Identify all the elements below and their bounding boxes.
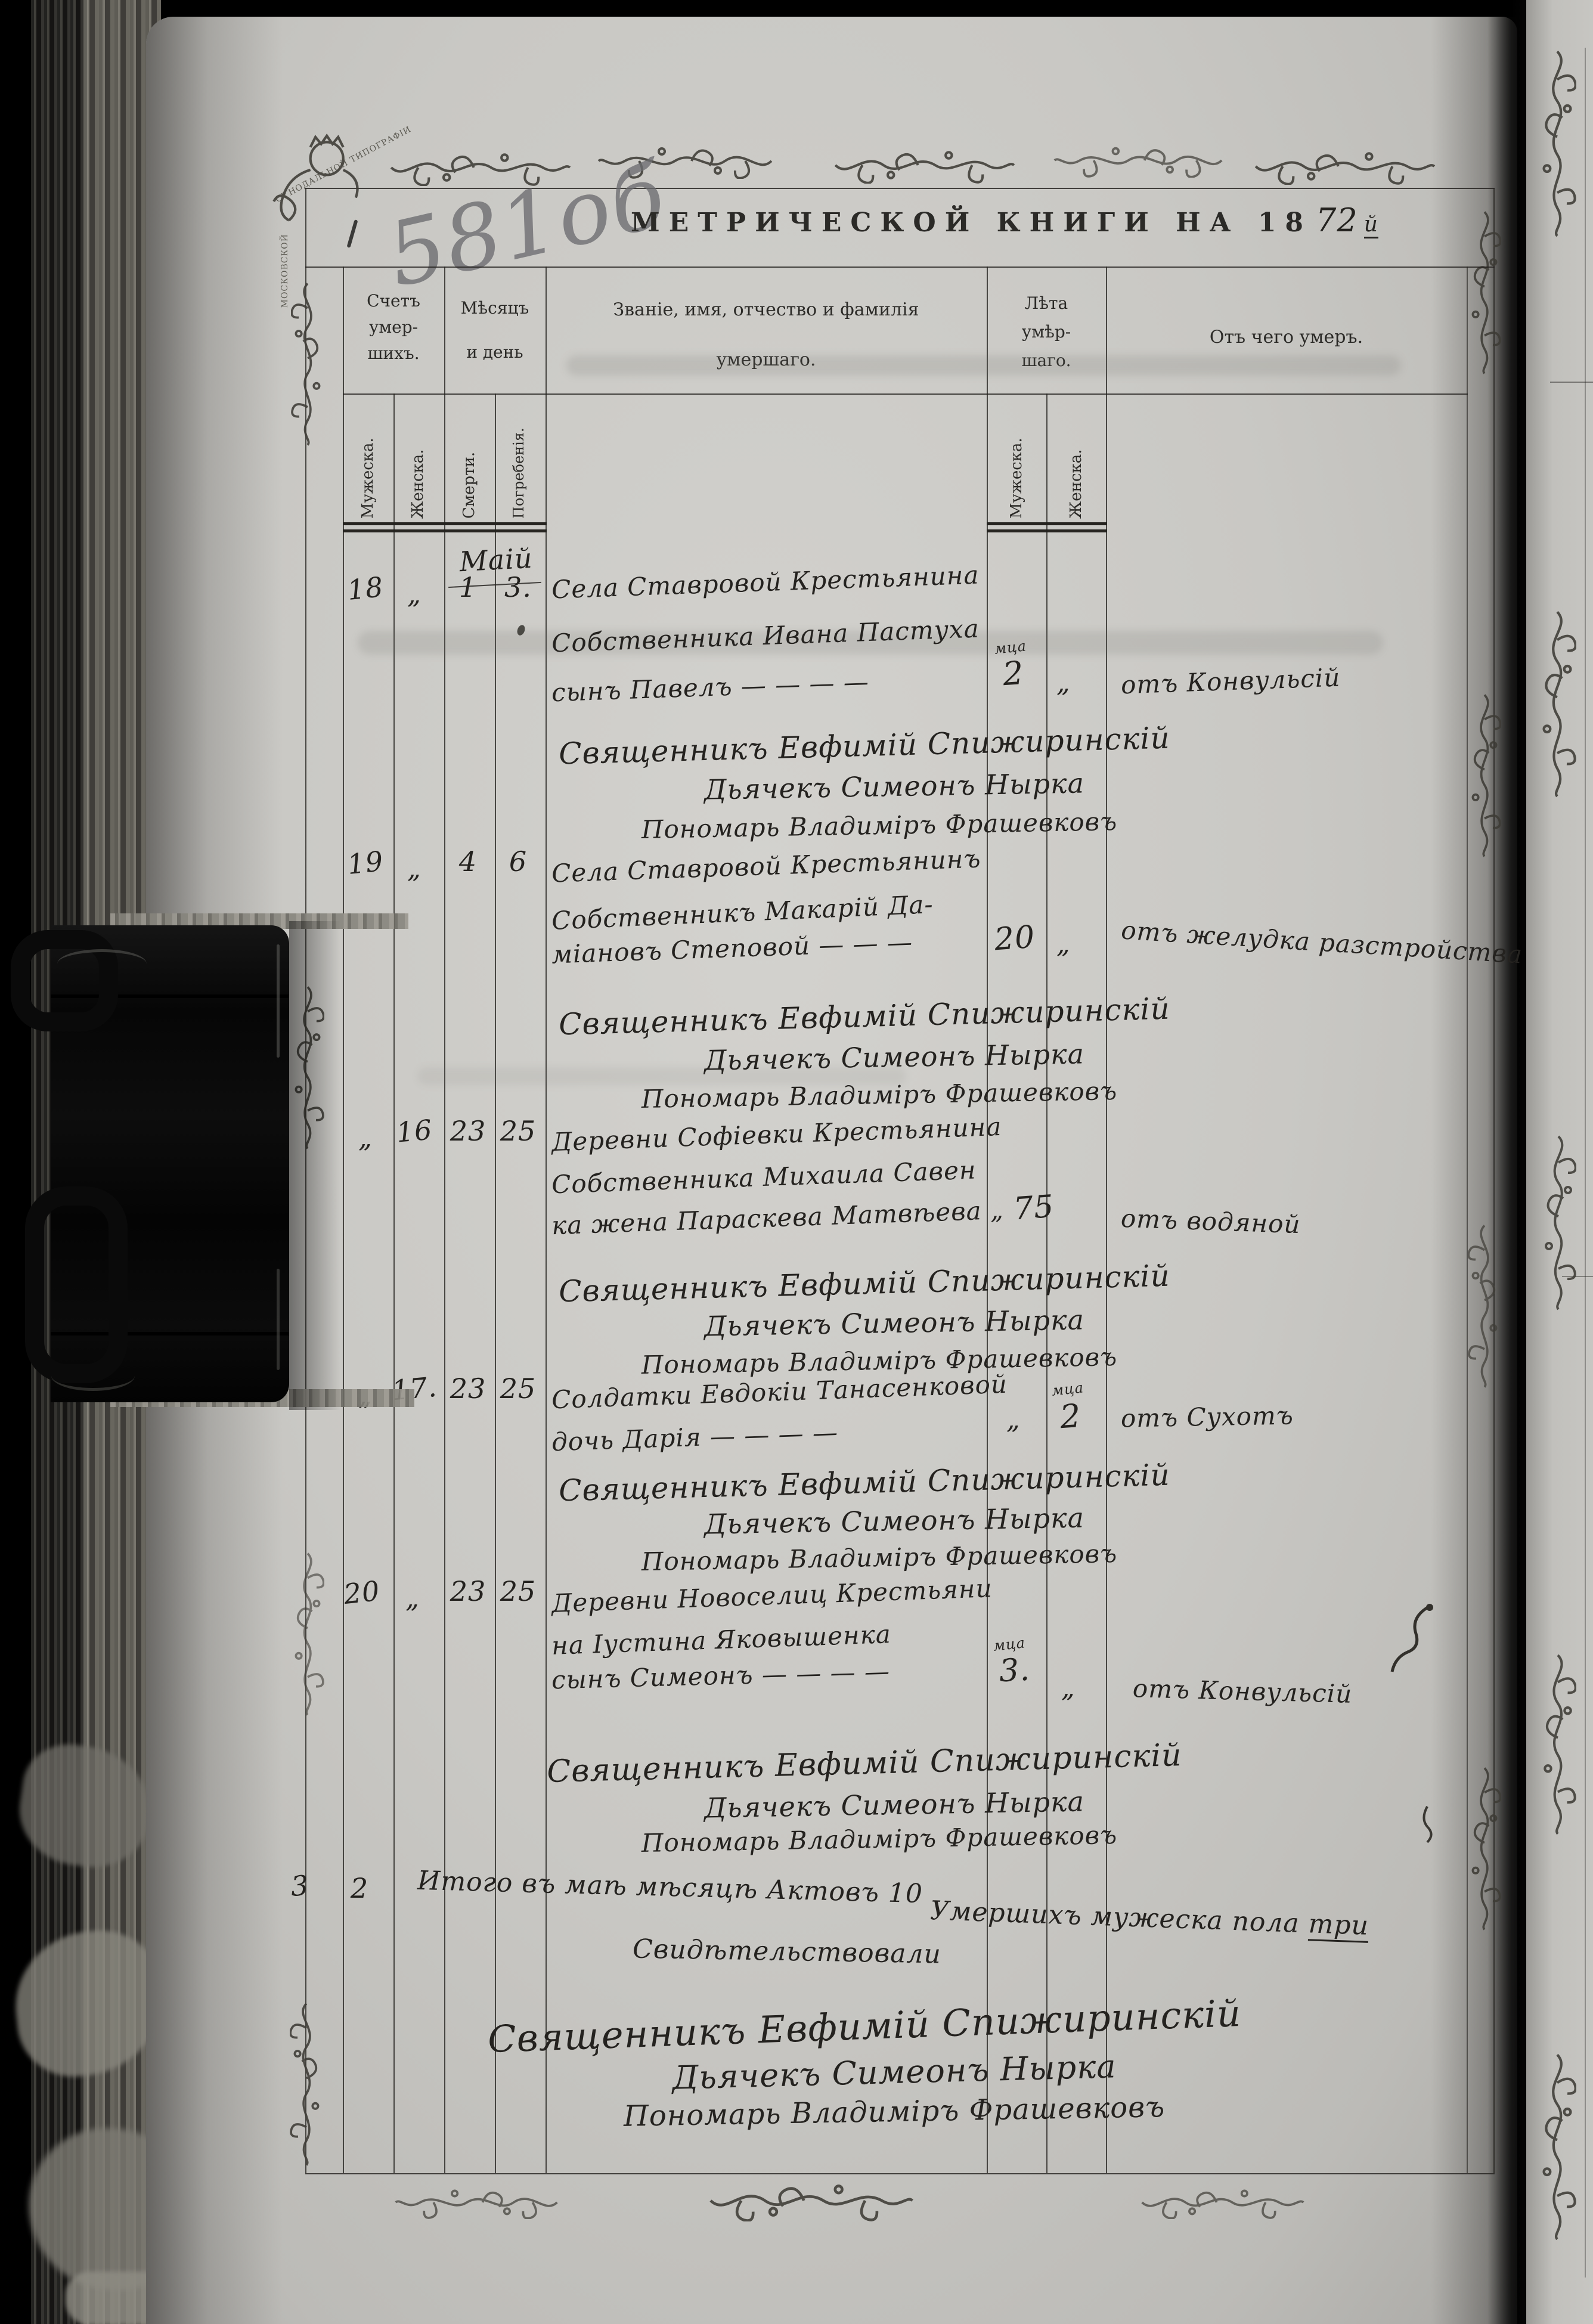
age-unit: мца [1051, 1379, 1085, 1399]
age-male: 2 [1002, 654, 1025, 693]
cause-of-death: отъ Сухотъ [1121, 1400, 1294, 1433]
count-male-ditto: „ [339, 1123, 392, 1154]
count-female-ditto: „ [390, 854, 438, 884]
burial-day: 25 [491, 1372, 545, 1405]
age-male-ditto: „ [1006, 1405, 1021, 1435]
subheader-count-female: Женска. [409, 398, 427, 519]
death-day: 23 [442, 1372, 494, 1405]
column-header-month: и день [444, 342, 546, 362]
column-header-month: Мѣсяцъ [444, 298, 546, 318]
count-male: 18 [337, 569, 393, 607]
age-male: 3. [998, 1652, 1031, 1690]
ruled-line-horizontal [343, 393, 1468, 395]
binder-clip-highlight [51, 1361, 135, 1391]
subheader-death-day: Смерти. [460, 398, 478, 519]
floral-ornament [1468, 179, 1501, 405]
floral-ornament [1049, 143, 1228, 178]
floral-ornament [1538, 2045, 1576, 2248]
binder-clip-shadow [289, 921, 340, 1410]
ruled-line-horizontal [1550, 382, 1593, 383]
summary-male-total: 3 [272, 1868, 328, 1904]
age-female-ditto: „ [1056, 929, 1071, 959]
count-male: 20 [333, 1573, 390, 1611]
cause-of-death: отъ Конвульсій [1132, 1674, 1353, 1709]
column-header-count: Счетъ [343, 291, 444, 311]
title-year-suffix: й [1364, 212, 1378, 238]
subheader-age-female: Женска. [1067, 398, 1085, 519]
ruled-line-vertical [1467, 267, 1468, 2173]
floral-ornament [1538, 42, 1576, 244]
age-female: 75 [1012, 1189, 1055, 1228]
floral-ornament [1468, 686, 1501, 864]
floral-ornament [290, 1997, 323, 2170]
floral-ornament [1468, 1759, 1501, 1938]
subheader-age-male: Мужеска. [1008, 398, 1025, 519]
burial-day: 6 [491, 845, 545, 878]
summary-underlined-word: три [1308, 1908, 1369, 1943]
subheader-count-male: Мужеска. [359, 398, 377, 519]
summary-female-total: 2 [333, 1872, 386, 1904]
count-female-ditto: „ [389, 1584, 436, 1614]
floral-ornament [1539, 1646, 1576, 1842]
age-female-ditto: „ [1056, 668, 1071, 698]
ruled-line-vertical [393, 393, 395, 2173]
death-day: 23 [442, 1575, 494, 1607]
column-header-count: умер- [343, 317, 444, 337]
column-header-count: шихъ. [343, 343, 444, 363]
floral-ornament [291, 274, 324, 453]
paper-flaw-squiggle [1388, 1601, 1438, 1674]
death-day: 4 [442, 845, 494, 878]
paper-flaw-mark [1417, 1804, 1436, 1843]
column-header-age: умѣр- [987, 322, 1106, 342]
scanned-register-page: СѴНОДАЛЬНОЙ ТИПОГРАФІИ МОСКОВСКОЙ 581об … [0, 0, 1593, 2324]
binder-clip-prong [25, 1186, 128, 1383]
floral-ornament [1133, 2186, 1312, 2219]
floral-ornament [1541, 1133, 1576, 1312]
age-male: 20 [993, 919, 1036, 958]
column-header-age: Лѣта [987, 293, 1106, 313]
floral-ornament [393, 2186, 560, 2219]
printer-ribbon-text: МОСКОВСКОЙ [280, 234, 290, 308]
binder-clip-prong [11, 930, 118, 1031]
death-day: 23 [442, 1115, 494, 1147]
floral-ornament [823, 147, 1025, 184]
floral-ornament [291, 1550, 324, 1717]
binder-clip-highlight [277, 944, 280, 1058]
frame-line-bottom [305, 2173, 1495, 2174]
ruled-line-horizontal [305, 267, 1495, 268]
death-day: 1 [442, 571, 494, 603]
title-printed: МЕТРИЧЕСКОЙ КНИГИ НА 18 [631, 207, 1312, 238]
floral-ornament [1538, 602, 1576, 805]
floral-ornament [1246, 148, 1443, 185]
count-male: 19 [337, 844, 393, 881]
floral-ornament [703, 2180, 918, 2221]
ink-bleed-through [566, 355, 1401, 376]
binder-clip-highlight [277, 1269, 280, 1370]
title-year-handwritten: 72 [1316, 202, 1358, 239]
count-female-ditto: „ [390, 580, 438, 610]
burial-day: 3. [491, 571, 545, 603]
subheader-burial-day: Погребенія. [510, 398, 527, 519]
cause-of-death: отъ водяной [1120, 1204, 1301, 1239]
column-header-cause: Отъ чего умеръ. [1106, 327, 1467, 348]
column-header-name: Званіе, имя, отчество и фамилія [546, 299, 987, 320]
burial-day: 25 [491, 1115, 545, 1147]
count-female: 16 [389, 1113, 439, 1149]
age-female-ditto: „ [1061, 1673, 1076, 1703]
burial-day: 25 [491, 1575, 545, 1607]
age-female: 2 [1059, 1397, 1083, 1436]
age-unit: мца [993, 1634, 1027, 1654]
binder-clip-highlight [57, 949, 147, 978]
ruled-line-vertical [1106, 267, 1107, 2173]
floral-ornament [1468, 1222, 1501, 1389]
page-title: МЕТРИЧЕСКОЙ КНИГИ НА 1872й [620, 202, 1389, 239]
